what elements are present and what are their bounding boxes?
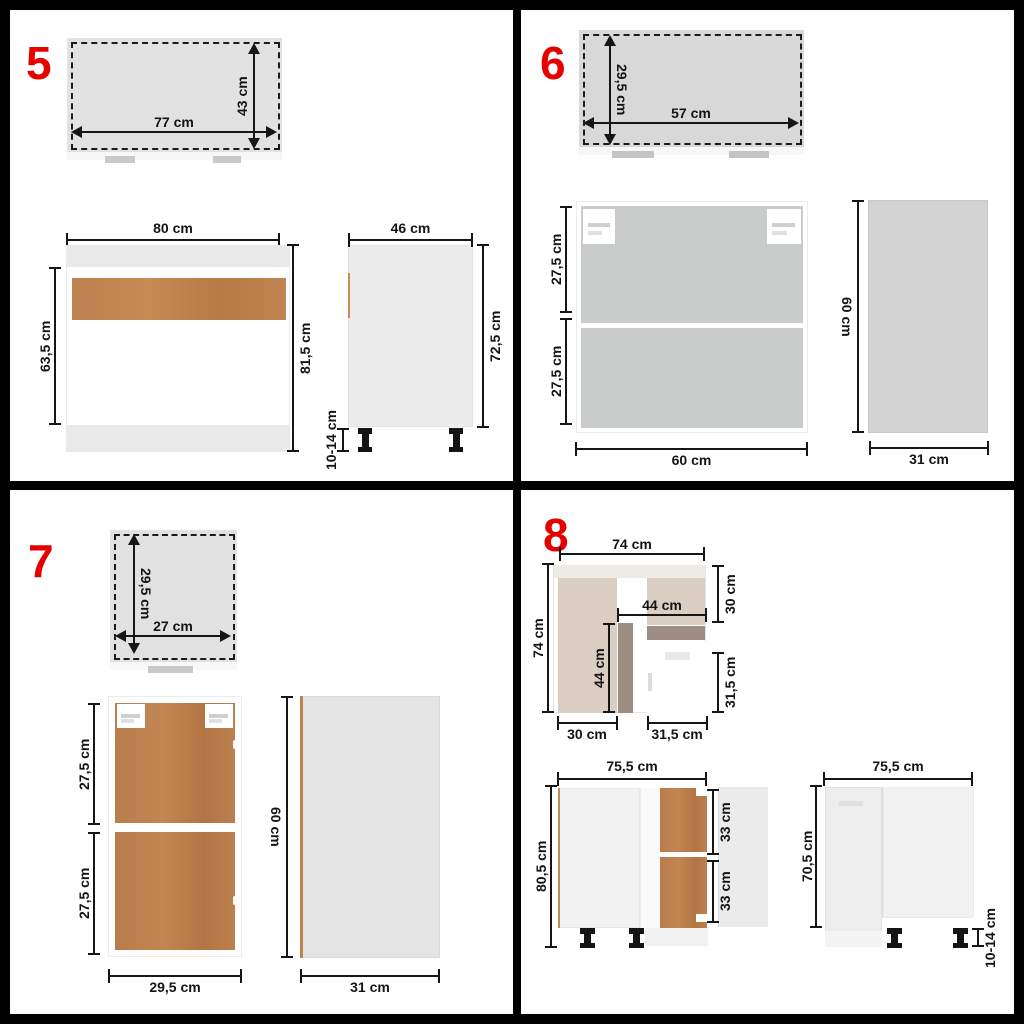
front-view-cabinet <box>108 696 242 957</box>
panel-8: 8 74 cm 74 cm 44 cm 44 cm 30 cm 31,5 cm … <box>521 490 1014 1014</box>
panel-6: 6 29,5 cm 57 cm 27,5 cm 27,5 cm 60 cm 60… <box>521 10 1014 481</box>
width-dim-label: 29,5 cm <box>108 979 242 995</box>
side-view-panel <box>868 200 988 433</box>
bottom-rail <box>66 425 290 452</box>
shelf-pin <box>233 896 238 905</box>
height-dim-line <box>815 785 817 928</box>
width-dim-line <box>66 239 280 241</box>
frame-stile <box>640 788 661 928</box>
mount-tab <box>729 151 769 158</box>
closed-door <box>558 788 640 928</box>
hinge-plate <box>205 704 233 728</box>
adjustable-foot <box>953 928 968 948</box>
plinth-tab <box>665 652 690 660</box>
width-dim-label: 75,5 cm <box>823 758 973 774</box>
side-panel-right <box>882 787 974 918</box>
inner-height-dim-line <box>54 267 56 425</box>
bottom-middle-dim-label: 31,5 cm <box>617 726 737 742</box>
lower-section-dim-line <box>565 318 567 425</box>
width-dim-label: 27 cm <box>117 618 229 634</box>
adjustable-foot <box>629 928 644 948</box>
inner-width-dim-line <box>617 614 707 616</box>
panel-7: 7 29,5 cm 27 cm 27,5 cm 27,5 cm 29,5 cm <box>10 490 513 1014</box>
adjustable-foot <box>449 428 463 452</box>
width-dim-label: 80 cm <box>66 220 280 236</box>
front-view-cabinet <box>66 245 290 452</box>
mount-tab <box>213 156 241 163</box>
mount-tab <box>148 666 193 673</box>
right-bottom-dim-label: 31,5 cm <box>722 652 738 713</box>
interior-dark-strip <box>618 623 633 713</box>
upper-section-dim-label: 27,5 cm <box>548 206 564 313</box>
legs-dim-label: 10-14 cm <box>982 898 998 978</box>
depth-dim-line <box>547 563 549 713</box>
shelf <box>660 852 707 857</box>
height-dim-arrow <box>253 45 255 147</box>
height-dim-label: 43 cm <box>234 45 250 147</box>
lower-section-dim-label: 27,5 cm <box>548 318 564 425</box>
width-dim-line <box>108 975 242 977</box>
door-lower-dim-label: 33 cm <box>717 860 733 923</box>
width-dim-label: 74 cm <box>559 536 705 552</box>
width-dim-line <box>869 447 989 449</box>
side-view-panel <box>348 245 473 427</box>
height-dim-line <box>482 244 484 428</box>
height-dim-label: 72,5 cm <box>487 244 503 428</box>
door-upper-dim-label: 33 cm <box>717 789 733 855</box>
panel-5: 5 77 cm 43 cm 80 cm 63,5 cm 81,5 cm 46 c… <box>10 10 513 481</box>
width-dim-label: 46 cm <box>348 220 473 236</box>
shelf <box>581 323 803 328</box>
cabinet-edge <box>553 565 554 713</box>
shelf <box>115 823 235 832</box>
height-dim-label: 81,5 cm <box>297 244 313 452</box>
cabinet-bottom-strip <box>67 152 282 160</box>
door-lower-dim-line <box>712 860 714 923</box>
legs-dim-bracket <box>342 428 344 452</box>
mount-tab <box>612 151 654 158</box>
hinge-plate <box>583 209 615 244</box>
mount-tab <box>105 156 135 163</box>
wood-edge <box>300 696 303 958</box>
adjustable-foot <box>358 428 372 452</box>
width-dim-line <box>559 553 705 555</box>
height-dim-line <box>286 696 288 958</box>
inner-height-dim-label: 63,5 cm <box>37 267 53 425</box>
height-dim-line <box>857 200 859 433</box>
width-dim-line <box>575 448 808 450</box>
adjustable-foot <box>580 928 595 948</box>
width-dim-line <box>823 778 973 780</box>
interior-dark-band <box>647 626 705 640</box>
width-dim-arrow <box>585 122 797 124</box>
notch-mark <box>648 673 652 691</box>
legs-dim-bracket <box>977 928 979 947</box>
top-rail <box>66 245 290 267</box>
hinge-plate <box>117 704 145 728</box>
top-view-front-edge <box>553 565 705 578</box>
height-dim-label: 60 cm <box>839 200 855 433</box>
height-dim-arrow <box>609 37 611 143</box>
inner-width-dim-label: 44 cm <box>617 597 707 613</box>
width-dim-label: 31 cm <box>300 979 440 995</box>
dimension-sheet: 5 77 cm 43 cm 80 cm 63,5 cm 81,5 cm 46 c… <box>0 0 1024 1024</box>
width-dim-line <box>348 239 473 241</box>
width-dim-label: 75,5 cm <box>557 758 707 774</box>
bottom-middle-dim-line <box>647 722 708 724</box>
lower-section-dim-line <box>93 832 95 955</box>
upper-section-dim-label: 27,5 cm <box>76 703 92 825</box>
right-bottom-dim-line <box>717 652 719 713</box>
right-top-dim-line <box>717 565 719 623</box>
panel-number: 5 <box>26 40 52 86</box>
handle-mark <box>839 801 863 806</box>
height-dim-label: 29,5 cm <box>614 37 630 143</box>
width-dim-label: 31 cm <box>869 451 989 467</box>
width-dim-arrow <box>117 635 229 637</box>
upper-section-dim-line <box>93 703 95 825</box>
height-dim-label: 60 cm <box>268 696 284 958</box>
front-view-cabinet <box>576 201 808 433</box>
shelf-pin <box>233 740 238 749</box>
wood-edge <box>558 788 560 928</box>
right-top-dim-label: 30 cm <box>722 565 738 623</box>
wood-back-panel <box>72 278 286 320</box>
width-dim-label: 60 cm <box>575 452 808 468</box>
hinge-plate <box>767 209 801 244</box>
plinth-strip <box>825 931 882 947</box>
inner-depth-dim-label: 44 cm <box>591 623 607 713</box>
open-compartment <box>660 788 707 928</box>
bottom-left-dim-line <box>557 722 618 724</box>
upper-section-dim-line <box>565 206 567 313</box>
height-dim-label: 70,5 cm <box>799 785 815 928</box>
height-dim-label: 80,5 cm <box>533 785 549 948</box>
side-view-panel <box>300 696 440 958</box>
door-upper-dim-line <box>712 789 714 855</box>
wood-edge <box>348 273 350 318</box>
width-dim-label: 57 cm <box>585 105 797 121</box>
depth-dim-label: 74 cm <box>530 563 546 713</box>
inner-depth-dim-line <box>608 623 610 713</box>
height-dim-line <box>550 785 552 948</box>
adjustable-foot <box>887 928 902 948</box>
panel-number: 7 <box>28 538 54 584</box>
plinth <box>645 928 708 946</box>
hinge-mark <box>696 914 707 922</box>
legs-dim-label: 10-14 cm <box>323 408 339 472</box>
width-dim-line <box>300 975 440 977</box>
lower-section-dim-label: 27,5 cm <box>76 832 92 955</box>
width-dim-line <box>557 778 707 780</box>
side-panel-left <box>825 787 882 947</box>
panel-number: 6 <box>540 40 566 86</box>
hinge-mark <box>696 788 707 796</box>
height-dim-line <box>292 244 294 452</box>
